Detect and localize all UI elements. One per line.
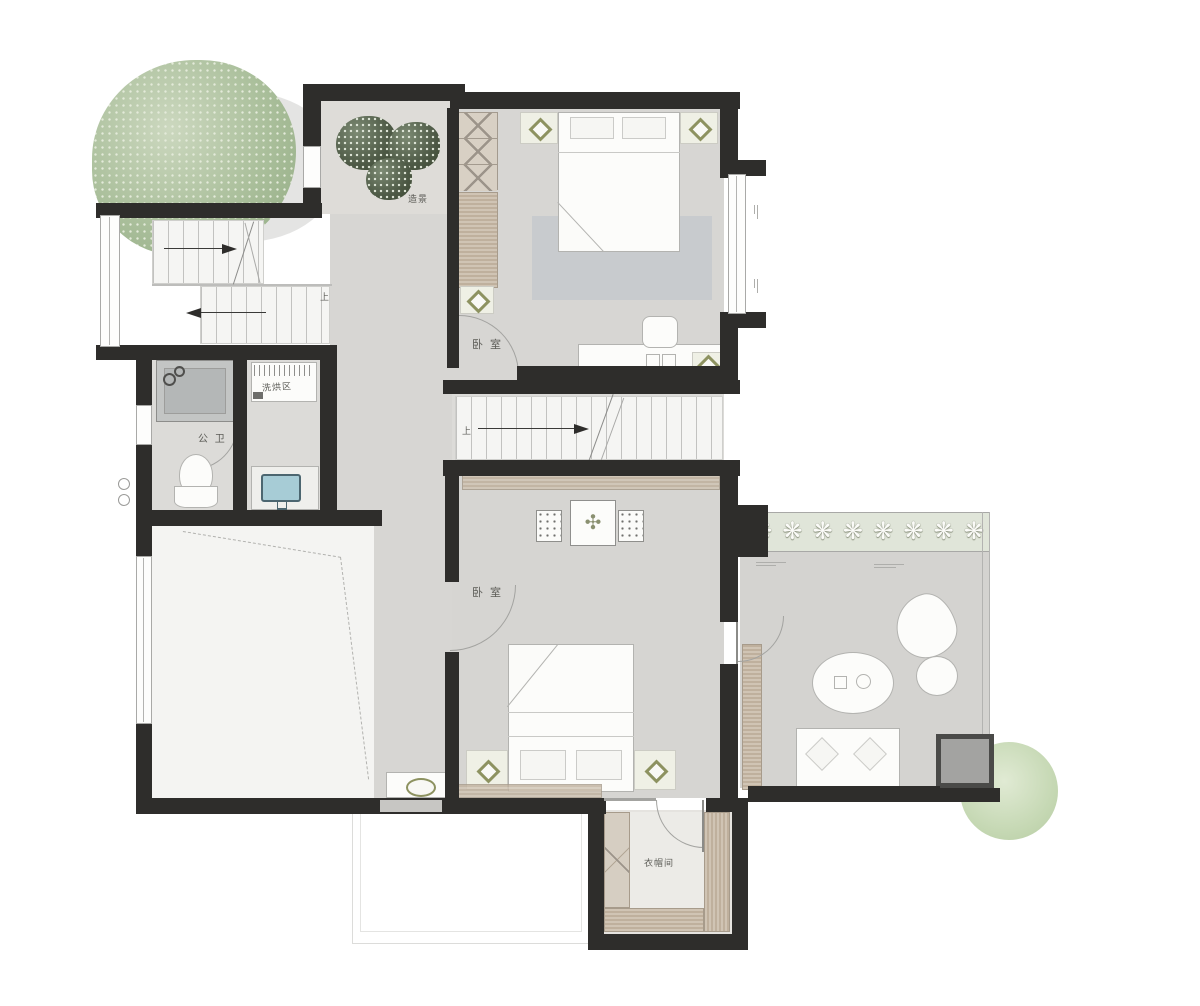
planter-flower-icon: ❋ <box>782 513 802 551</box>
wardrobe-cell <box>459 113 497 139</box>
wall <box>233 356 247 512</box>
closet-wardrobe-bottom <box>604 908 704 932</box>
bay-annotation <box>752 205 760 219</box>
dresser-box: ✣ <box>570 500 616 546</box>
bed1-pillow2 <box>622 117 666 139</box>
toilet-tank <box>174 486 218 508</box>
stair-lower-run <box>200 286 330 344</box>
bay-annotation2 <box>752 279 760 293</box>
dresser-mat <box>536 510 562 542</box>
terrace-door-leaf <box>736 616 738 664</box>
dresser-mat2 <box>618 510 644 542</box>
stair-landing <box>152 284 332 286</box>
ac-unit <box>936 734 994 788</box>
wall <box>447 108 459 368</box>
planter-flower-icon: ❋ <box>813 513 833 551</box>
planter-flower-icon: ❋ <box>873 513 893 551</box>
lamp-wardrobe <box>460 286 494 314</box>
stair-arrow-line2 <box>200 312 266 313</box>
hall-lamp-icon <box>406 778 436 797</box>
shower-head-icon <box>163 373 176 386</box>
wall <box>720 664 738 798</box>
desk-chair <box>642 316 678 348</box>
bay-window-bedroom1 <box>728 174 746 314</box>
wall <box>732 798 748 950</box>
window-bath-left <box>136 405 152 445</box>
shower-valve-icon <box>174 366 185 377</box>
lamp-nightstand4 <box>634 750 676 790</box>
window-void-left <box>136 556 152 724</box>
bed2-blanket-line2 <box>508 736 634 737</box>
planter-flower-icon: ❋ <box>903 513 923 551</box>
wardrobe-cell <box>459 165 497 191</box>
mid-stair-up-label: 上 <box>462 424 472 437</box>
lamp-nightstand1 <box>520 112 558 144</box>
planter-flower-icon: ❋ <box>934 513 954 551</box>
landscape-label: 造景 <box>408 192 428 205</box>
bed2-blanket-line <box>508 712 634 713</box>
bathroom-label: 公 卫 <box>198 430 227 445</box>
lamp-nightstand2 <box>680 112 718 144</box>
lounge-ottoman <box>916 656 958 696</box>
wall <box>936 788 1000 802</box>
wall <box>443 460 740 476</box>
roof-outline-inner <box>360 812 582 932</box>
stair-arrow-line <box>164 248 224 249</box>
headboard-cabinet-band <box>462 474 720 490</box>
wall <box>445 476 459 582</box>
mid-stair-arrow-line <box>478 428 576 429</box>
wall <box>96 345 138 360</box>
wall-light-segment <box>380 800 442 812</box>
wall <box>136 722 152 814</box>
table-item-round <box>856 674 871 689</box>
wall <box>720 476 738 622</box>
floor-plan: 上 公 卫 洗烘区 造景 卧 室 上 <box>0 0 1200 1006</box>
dresser-plant-icon: ✣ <box>585 512 602 534</box>
planter-box: ❋ ❋ ❋ ❋ ❋ ❋ ❋ ❋ <box>746 512 990 552</box>
wall <box>706 798 748 812</box>
bed2-pillow2 <box>576 750 622 780</box>
wall <box>136 510 382 526</box>
wardrobe-x-cells <box>458 112 498 190</box>
bed1-blanket-line <box>558 152 680 153</box>
laundry-label: 洗烘区 <box>262 379 293 394</box>
table-item <box>834 676 847 689</box>
window-sill-band <box>456 784 602 798</box>
wall <box>303 84 465 101</box>
wall <box>588 798 604 950</box>
planter-flower-icon: ❋ <box>843 513 863 551</box>
oval-table <box>812 652 894 714</box>
planter-flower-icon: ❋ <box>964 513 984 551</box>
terrace-cabinet <box>742 644 762 790</box>
closet-top-line <box>604 798 656 801</box>
wardrobe-hanging <box>458 192 498 288</box>
wall <box>136 798 606 814</box>
stair-up-label: 上 <box>320 290 330 303</box>
wall <box>136 443 152 513</box>
mid-stair-arrow-head <box>574 424 589 434</box>
wall <box>720 366 738 394</box>
planter-annotation2 <box>874 562 904 570</box>
window-stair-left <box>100 215 120 347</box>
basin-stand <box>277 502 287 510</box>
basin-icon <box>261 474 301 502</box>
bed1-pillow <box>570 117 614 139</box>
planter-annotation <box>756 560 786 568</box>
closet-wardrobe-left <box>604 812 630 908</box>
drain-pipes-icon <box>118 478 130 490</box>
window-line <box>109 217 110 345</box>
bedroom2-label: 卧 室 <box>472 584 503 600</box>
window-line <box>143 558 144 722</box>
wall <box>130 203 322 218</box>
closet-label: 衣帽间 <box>644 856 674 869</box>
window-terrace-left <box>303 146 321 188</box>
drain-pipes-icon2 <box>118 494 130 506</box>
garden-bush-icon3 <box>366 158 412 200</box>
wall <box>445 652 459 798</box>
washer-hatch <box>254 365 314 376</box>
wall <box>450 92 740 109</box>
window-line <box>736 176 737 312</box>
wall <box>320 345 337 523</box>
bedroom1-label: 卧 室 <box>472 336 503 352</box>
wardrobe-cell <box>459 139 497 165</box>
stair-arrow-head2 <box>186 308 201 318</box>
wall <box>748 786 940 802</box>
stair-arrow-head <box>222 244 237 254</box>
bed2-pillow <box>520 750 566 780</box>
closet-wardrobe-right <box>704 812 730 932</box>
wall <box>443 380 740 394</box>
wall <box>588 934 748 950</box>
closet-door-leaf <box>702 800 704 852</box>
